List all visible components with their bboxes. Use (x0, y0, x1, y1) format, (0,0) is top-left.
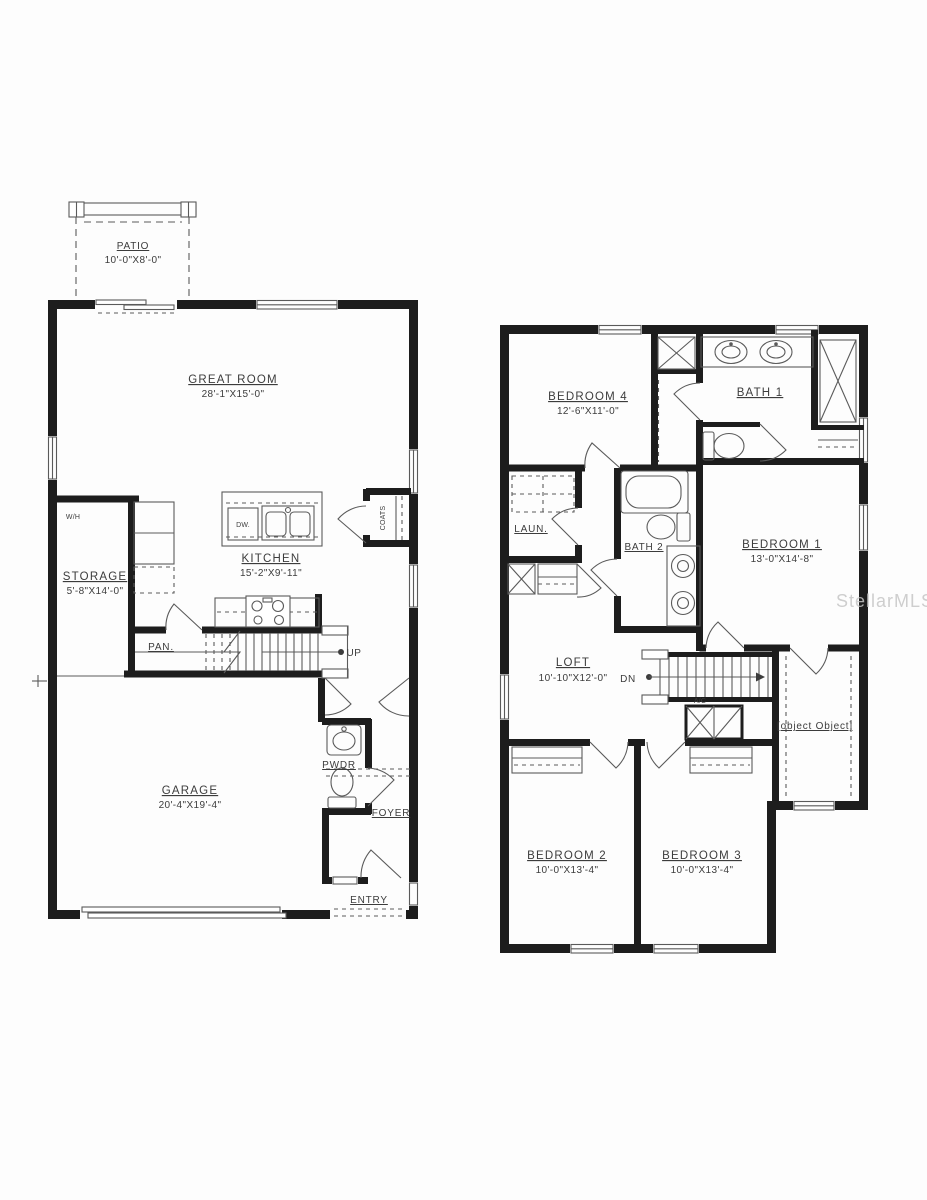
pantry-label: PAN. (148, 642, 174, 653)
stairs-down (642, 650, 775, 704)
kitchen-island (222, 492, 322, 546)
storage-dims: 5'-8"X14'-0" (67, 586, 124, 597)
garage-label: GARAGE (162, 785, 218, 797)
loft-dims: 10'-10"X12'-0" (539, 673, 608, 684)
bath2-toilet (647, 513, 690, 541)
entry-label: ENTRY (350, 895, 388, 906)
stairs-up (206, 626, 348, 678)
first-floor-interior-walls (32, 489, 411, 885)
laundry-label: LAUN. (514, 524, 547, 535)
bedroom3-label: BEDROOM 3 (662, 850, 742, 862)
bath2-label: BATH 2 (624, 542, 663, 553)
powder-sink (327, 725, 361, 755)
bath1-toilet (703, 432, 744, 460)
stove-counter (215, 596, 319, 627)
linen-closet-top (658, 337, 695, 462)
bedroom1-dims: 13'-0"X14'-8" (751, 554, 814, 565)
refrigerator-cabinet (134, 502, 174, 593)
patio-label: PATIO (117, 241, 150, 252)
bedroom1-closet-shelf (818, 440, 858, 447)
first-floor-plan: PATIO 10'-0"X8'-0" GREAT ROOM 28'-1"X15'… (32, 202, 419, 919)
ac-label: A/C (694, 698, 706, 705)
floor-plan-page: PATIO 10'-0"X8'-0" GREAT ROOM 28'-1"X15'… (0, 0, 927, 1200)
bath2-vanity (667, 546, 700, 626)
water-heater-label: W/H (66, 514, 80, 521)
patio-dims: 10'-0"X8'-0" (105, 255, 162, 266)
foyer-label: FOYER (372, 808, 410, 819)
great-room-dims: 28'-1"X15'-0" (202, 389, 265, 400)
bedroom4-dims: 12'-6"X11'-0" (557, 406, 619, 417)
bath1-label: BATH 1 (737, 387, 784, 399)
dishwasher-label: DW. (236, 522, 250, 529)
powder-toilet (328, 768, 356, 808)
stairs-down-label: DN (620, 674, 636, 685)
stairs-up-label: UP (346, 648, 361, 659)
great-room-label: GREAT ROOM (188, 374, 278, 386)
kitchen-label: KITCHEN (242, 553, 301, 565)
coats-label: COATS (380, 506, 387, 531)
bath1-vanity (701, 337, 813, 367)
bedroom1-label: BEDROOM 1 (742, 539, 822, 551)
wic-label: [object Object] (777, 721, 853, 732)
bath2-tub (621, 471, 688, 513)
second-floor-plan: BEDROOM 4 12'-6"X11'-0" BATH 1 BEDROOM 1… (499, 324, 869, 954)
storage-label: STORAGE (63, 571, 127, 583)
powder-label: PWDR (322, 760, 356, 771)
ac-closet (686, 706, 742, 739)
garage-dims: 20'-4"X19'-4" (159, 800, 222, 811)
bath1-shower (820, 340, 856, 422)
coats-closet-shelf (396, 496, 402, 540)
laundry-washer-dryer (512, 476, 574, 512)
floor-plan-drawing: PATIO 10'-0"X8'-0" GREAT ROOM 28'-1"X15'… (0, 0, 927, 1200)
linen-closet-mid (508, 564, 577, 594)
bedroom2-label: BEDROOM 2 (527, 850, 607, 862)
loft-label: LOFT (556, 657, 590, 669)
bedroom2-closet (512, 747, 582, 773)
bedroom2-dims: 10'-0"X13'-4" (536, 865, 599, 876)
bedroom3-dims: 10'-0"X13'-4" (671, 865, 734, 876)
kitchen-dims: 15'-2"X9'-11" (240, 568, 302, 579)
stellar-mls-watermark: StellarMLS (836, 591, 927, 611)
bedroom4-label: BEDROOM 4 (548, 391, 628, 403)
bedroom3-closet (690, 747, 752, 773)
